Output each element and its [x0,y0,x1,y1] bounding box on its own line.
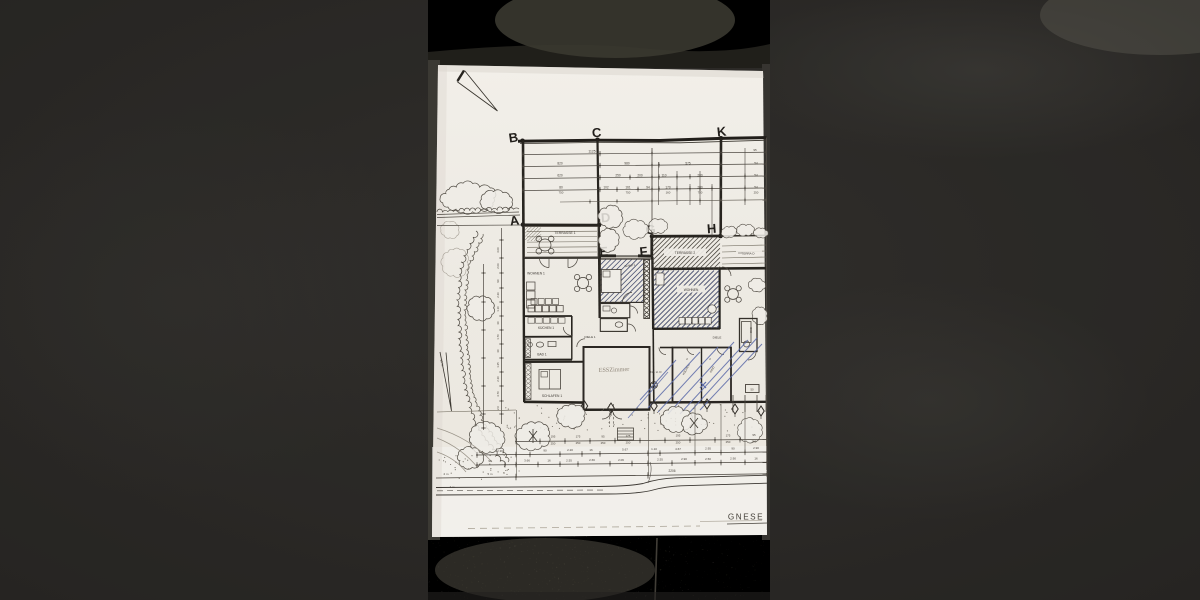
svg-text:54: 54 [754,174,758,178]
svg-text:GNESE: GNESE [728,513,764,522]
svg-text:200: 200 [637,174,643,178]
svg-text:4.67: 4.67 [675,447,681,451]
svg-text:DIELE: DIELE [713,335,722,339]
svg-text:2.0: 2.0 [496,406,500,410]
svg-text:ESSZimmer: ESSZimmer [599,366,630,374]
svg-text:3.66: 3.66 [524,459,530,463]
svg-text:1.10: 1.10 [651,447,657,451]
svg-text:750: 750 [626,190,631,194]
svg-text:1.70: 1.70 [496,334,500,340]
svg-text:102: 102 [603,186,609,190]
svg-text:30: 30 [496,321,500,325]
svg-text:250: 250 [615,174,621,178]
svg-text:980: 980 [624,162,630,166]
svg-text:30: 30 [496,349,500,353]
svg-text:820: 820 [557,162,563,166]
svg-text:2.66: 2.66 [589,458,595,462]
svg-text:2.06: 2.06 [618,458,624,462]
svg-text:1125: 1125 [588,150,595,154]
svg-text:5.67: 5.67 [622,448,628,452]
svg-text:161: 161 [625,186,631,190]
svg-text:54: 54 [754,162,758,166]
svg-text:H: H [706,221,716,237]
svg-text:160: 160 [666,190,671,194]
svg-text:250: 250 [754,190,759,194]
svg-text:BAD: BAD [749,327,753,333]
svg-text:250: 250 [626,441,631,445]
svg-text:195: 195 [551,435,556,439]
svg-text:2.30: 2.30 [496,376,500,382]
svg-text:2.90: 2.90 [681,457,687,461]
svg-text:TERRASSE 1: TERRASSE 1 [554,231,575,235]
svg-text:TERRA D: TERRA D [741,252,755,256]
svg-text:175: 175 [576,435,581,439]
svg-text:90: 90 [488,459,492,463]
svg-text:NA. LI. D: NA. LI. D [651,370,662,374]
svg-text:620: 620 [557,174,563,178]
svg-text:250: 250 [576,441,581,445]
svg-text:2.95: 2.95 [705,447,711,451]
svg-text:110: 110 [661,174,666,178]
svg-text:2.90: 2.90 [753,446,759,450]
svg-text:80: 80 [559,186,563,190]
svg-text:90: 90 [731,446,735,450]
svg-text:2206: 2206 [668,469,675,473]
svg-text:250: 250 [726,440,731,444]
svg-text:1.35: 1.35 [496,362,500,368]
svg-text:750: 750 [559,190,564,194]
svg-text:250: 250 [752,440,757,444]
svg-text:2.90: 2.90 [730,457,736,461]
svg-text:175: 175 [626,434,631,438]
svg-text:1.10: 1.10 [496,306,500,312]
svg-text:90: 90 [496,279,500,283]
svg-text:TERRASSE 2: TERRASSE 2 [675,251,696,255]
svg-text:94: 94 [646,186,650,190]
svg-text:195: 195 [676,434,681,438]
svg-text:50: 50 [750,387,754,391]
svg-text:16: 16 [589,448,593,452]
svg-text:3.00: 3.00 [496,247,500,253]
svg-text:5 m: 5 m [487,472,493,476]
svg-text:54: 54 [754,186,758,190]
svg-text:170: 170 [665,186,671,190]
svg-text:2.36: 2.36 [496,292,500,298]
svg-text:2.36: 2.36 [497,449,503,453]
svg-text:95: 95 [753,148,757,152]
svg-text:575: 575 [685,162,691,166]
svg-text:95: 95 [752,433,756,437]
svg-text:16: 16 [754,456,758,460]
svg-text:2.55: 2.55 [657,457,663,461]
svg-text:2.50: 2.50 [705,457,711,461]
svg-text:16: 16 [547,459,551,463]
svg-text:WOHNEN: WOHNEN [684,288,699,292]
svg-text:BAD 1: BAD 1 [537,352,546,356]
svg-text:2 m: 2 m [443,472,449,476]
svg-text:250: 250 [551,441,556,445]
svg-text:2.20: 2.20 [567,448,573,452]
svg-text:DIELE 1: DIELE 1 [584,335,596,339]
svg-text:2.06: 2.06 [496,263,500,269]
svg-text:SCHLAFEN 1: SCHLAFEN 1 [542,394,563,398]
svg-text:2.55: 2.55 [566,458,572,462]
svg-text:KÜCHEN 1: KÜCHEN 1 [538,326,554,330]
svg-text:95: 95 [601,434,605,438]
svg-text:250: 250 [601,441,606,445]
svg-text:90: 90 [543,448,547,452]
svg-text:4.70: 4.70 [496,391,500,397]
svg-text:250: 250 [676,440,681,444]
svg-text:WOHNEN 1: WOHNEN 1 [527,272,545,276]
svg-text:175: 175 [726,433,731,437]
